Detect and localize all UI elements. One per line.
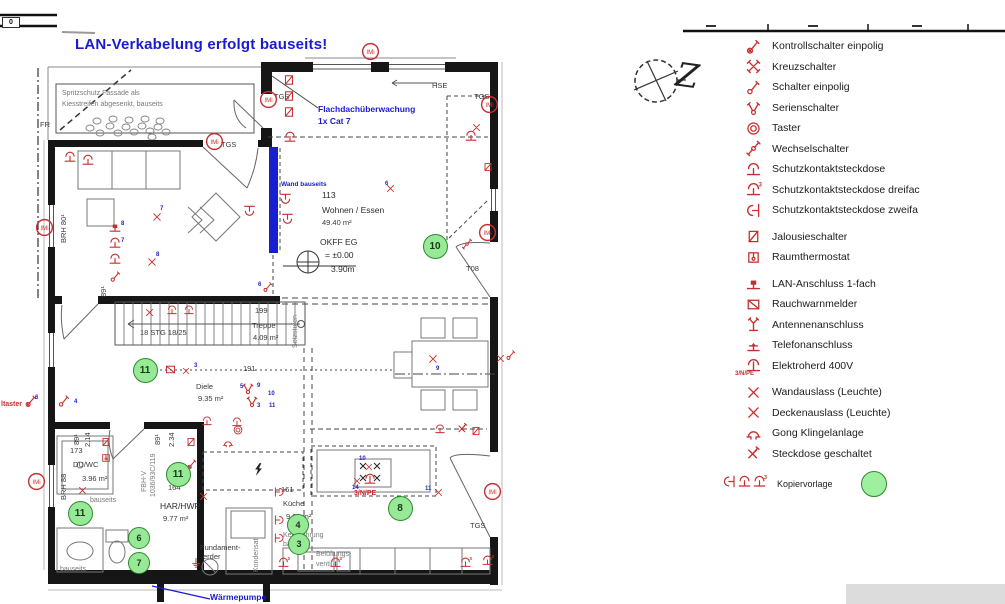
legend-item: Wandauslass (Leuchte) <box>740 382 1005 403</box>
lightning-icon <box>251 462 266 482</box>
plan-label: TGS <box>470 522 485 530</box>
socket-icon <box>737 474 752 494</box>
svg-text:IMi: IMi <box>488 488 496 495</box>
xmark-icon <box>144 305 155 323</box>
copy-marker: 11 <box>68 501 93 526</box>
legend-label: Schutzkontaktsteckdose dreifac <box>772 184 920 196</box>
plan-label: 18 STG 18/25 <box>140 329 187 337</box>
circuit-ref-number: 7 <box>121 238 124 244</box>
plan-label: FBH-V <box>141 471 149 492</box>
plan-label: 113 <box>322 191 336 200</box>
legend-label: Kreuzschalter <box>772 61 836 73</box>
legend-item: Elektroherd 400V3/N/PE <box>740 356 1005 377</box>
socket-icon <box>166 303 178 321</box>
legend-kopiervorlage-row: 3Kopiervorlage <box>740 471 1005 497</box>
legend-item: Gong Klingelanlage <box>740 423 1005 444</box>
symbol-legend: Kontrollschalter einpoligKreuzschalterSc… <box>740 36 1005 497</box>
legend-label: Wandauslass (Leuchte) <box>772 386 882 398</box>
telefon-icon <box>740 337 766 354</box>
box-icon <box>282 105 296 124</box>
legend-item: Antennenanschluss <box>740 315 1005 336</box>
socket-icon <box>283 130 297 149</box>
svg-text:3: 3 <box>764 475 767 481</box>
schalter-icon <box>505 348 517 366</box>
plan-label: BRH 88 <box>60 474 68 500</box>
imi-icon: IMi <box>35 218 54 242</box>
circuit-ref-number: 3 <box>257 403 260 409</box>
copy-marker: 11 <box>133 358 158 383</box>
legend-label: Schalter einpolig <box>772 81 850 93</box>
schalter-icon <box>740 79 766 96</box>
imi-icon: IMi <box>478 223 497 247</box>
copy-marker: 11 <box>166 462 191 487</box>
xmark-icon <box>77 483 88 501</box>
socket2-icon <box>243 204 262 218</box>
socket3-icon: 3 <box>277 556 290 574</box>
geschaltet-icon <box>456 422 469 440</box>
imi-icon: IMi <box>205 132 224 156</box>
plan-label: Kiesstreifen abgesenkt, bauseits <box>62 101 163 109</box>
plan-label: 49.40 m² <box>322 219 352 227</box>
imi-icon: IMi <box>480 95 499 119</box>
socket2-icon <box>722 474 737 494</box>
socket2-icon <box>279 192 298 206</box>
xmark-icon <box>151 210 163 228</box>
socket3-icon: 3 <box>752 474 767 494</box>
legend-label: Schutzkontaktsteckdose zweifa <box>772 204 918 216</box>
svg-text:IMi: IMi <box>366 48 374 55</box>
plan-label: FR <box>40 121 50 129</box>
svg-text:IMi: IMi <box>40 224 48 231</box>
legend-label: Telefonanschluss <box>772 339 853 351</box>
circuit-ref-number: 6 <box>385 181 388 187</box>
kreuz-icon <box>740 58 766 75</box>
plan-label: BRH 80¹ <box>60 214 68 243</box>
schalter-icon <box>109 270 122 288</box>
plan-label: erder <box>203 553 221 561</box>
legend-item: Kreuzschalter <box>740 57 1005 78</box>
schalter-icon <box>57 394 71 413</box>
legend-label: Serienschalter <box>772 102 839 114</box>
circuit-ref-number: 14 <box>352 485 359 491</box>
plan-label: T08 <box>466 265 479 273</box>
plan-label: 89¹ <box>73 434 81 445</box>
circuit-ref-number: 8 <box>121 221 124 227</box>
plan-label: 2.34 <box>168 432 176 447</box>
plan-label: 9.35 m² <box>198 395 223 403</box>
watermark-box <box>846 584 1005 604</box>
circuit-ref-number: 11 <box>269 403 275 409</box>
plan-label: Flachdachüberwachung <box>318 105 415 114</box>
svg-text:3: 3 <box>339 556 342 561</box>
legend-item: Jalousieschalter <box>740 227 1005 248</box>
serien-icon <box>740 99 766 116</box>
svg-text:IMi: IMi <box>210 138 218 145</box>
imi-icon: IMi <box>259 90 278 114</box>
erder-icon <box>190 556 202 574</box>
taster-icon <box>740 120 766 137</box>
circuit-ref-number: 6 <box>35 395 38 401</box>
plan-label: bauseits <box>60 566 86 574</box>
legend-item: Taster <box>740 118 1005 139</box>
socket3-icon: 3 <box>459 556 472 574</box>
legend-label: Steckdose geschaltet <box>772 448 872 460</box>
thermostat-icon <box>100 451 112 469</box>
thermostat-icon <box>740 249 766 266</box>
copy-marker: 10 <box>423 234 448 259</box>
circuit-ref-number: 8 <box>156 252 159 258</box>
plan-label: Küche <box>283 500 304 508</box>
floor-plan-page: 0 LAN-Verkabelung erfolgt bauseits! <box>0 0 1005 604</box>
legend-item: Wechselschalter <box>740 139 1005 160</box>
socket3-icon: 3 <box>329 556 342 574</box>
legend-label: Gong Klingelanlage <box>772 427 864 439</box>
plan-label: 3/N/PE <box>354 490 376 498</box>
legend-label: Schutzkontaktsteckdose <box>772 163 885 175</box>
rwm-icon <box>740 296 766 313</box>
svg-text:IMi: IMi <box>483 229 491 236</box>
socket-icon <box>63 150 77 169</box>
svg-text:3: 3 <box>758 183 761 189</box>
circuit-ref-number: 4 <box>74 399 77 405</box>
copy-marker: 3 <box>288 533 310 555</box>
plan-label: OKFF EG <box>320 238 357 247</box>
plan-label: HSE <box>432 82 447 90</box>
gong-icon <box>740 425 766 442</box>
circuit-ref-number: 9 <box>257 383 260 389</box>
legend-label: Kontrollschalter einpolig <box>772 40 883 52</box>
legend-label: Taster <box>772 122 801 134</box>
plan-label: 2.14 <box>84 432 92 447</box>
socket3-icon: 3 <box>740 181 766 198</box>
plan-label: Wohnen / Essen <box>322 206 384 215</box>
legend-item: Rauchwarnmelder <box>740 294 1005 315</box>
xmark-icon <box>495 351 506 369</box>
plan-label: Wärmepumpe <box>210 593 266 602</box>
socket-icon <box>268 514 286 526</box>
box-icon <box>482 160 494 178</box>
plan-label: 173 <box>70 447 83 455</box>
plan-label: Kondensat <box>253 539 261 572</box>
circuit-ref-number: 3 <box>194 363 197 369</box>
antenna-icon <box>740 316 766 333</box>
legend-item: 3Schutzkontaktsteckdose dreifac <box>740 180 1005 201</box>
circuit-ref-number: 6 <box>258 282 261 288</box>
box-icon <box>740 228 766 245</box>
plan-label: 89¹ <box>100 286 108 297</box>
svg-text:IMi: IMi <box>32 478 40 485</box>
ruler-line <box>680 18 1005 38</box>
gong-icon <box>222 436 234 454</box>
xmark-icon <box>471 120 482 138</box>
circuit-ref-number: 10 <box>268 391 275 397</box>
socket-icon <box>108 252 122 271</box>
kontroll-icon <box>740 38 766 55</box>
circuit-ref-number: 9 <box>436 366 439 372</box>
box-icon <box>470 424 482 442</box>
svg-text:IMi: IMi <box>264 96 272 103</box>
svg-text:3: 3 <box>491 554 494 559</box>
legend-sub-label: 3/N/PE <box>735 371 754 377</box>
wechsel-icon <box>461 237 473 255</box>
legend-item: Schalter einpolig <box>740 77 1005 98</box>
circuit-ref-number: 7 <box>160 206 163 212</box>
legend-label: Wechselschalter <box>772 143 849 155</box>
socket-icon <box>268 486 286 498</box>
svg-text:3: 3 <box>469 556 472 561</box>
xmark-icon <box>198 489 209 507</box>
legend-item: Kontrollschalter einpolig <box>740 36 1005 57</box>
plan-label: 3.90m <box>331 265 355 274</box>
legend-label: Antennenanschluss <box>772 319 864 331</box>
socket-icon <box>434 422 446 440</box>
legend-item: Schutzkontaktsteckdose <box>740 159 1005 180</box>
plan-label: Diele <box>196 383 213 391</box>
legend-label: Rauchwarnmelder <box>772 298 857 310</box>
legend-item: LAN-Anschluss 1-fach <box>740 274 1005 295</box>
plan-label: 199 <box>255 307 268 315</box>
socket-icon <box>740 161 766 178</box>
plan-label: 191 <box>243 365 256 373</box>
box-icon <box>185 435 197 453</box>
circuit-ref-number: 5 <box>240 384 243 390</box>
socket2-icon <box>281 212 300 226</box>
wechsel-icon <box>740 140 766 157</box>
plan-label: Setzstufen <box>292 315 300 348</box>
kopiervorlage-label: Kopiervorlage <box>777 479 833 489</box>
imi-icon: IMi <box>361 42 380 66</box>
legend-item: Serienschalter <box>740 98 1005 119</box>
plan-label: = ±0.00 <box>325 251 354 260</box>
circuit-ref-number: 11 <box>425 486 431 492</box>
legend-item: Telefonanschluss <box>740 335 1005 356</box>
plan-label: Wand bauseits <box>281 181 327 188</box>
legend-label: Raumthermostat <box>772 251 850 263</box>
imi-icon: IMi <box>483 482 502 506</box>
plan-label: Spritzschutz Fassade als <box>62 90 140 98</box>
plan-label: 9.77 m² <box>163 515 188 523</box>
xmark-icon <box>433 485 444 503</box>
schalter-icon <box>262 280 274 298</box>
xmark-icon <box>181 363 191 381</box>
imi-icon: IMi <box>27 472 46 496</box>
legend-item: Raumthermostat <box>740 247 1005 268</box>
xmark-icon <box>740 384 766 401</box>
copy-marker: 6 <box>128 527 150 549</box>
plan-label: DU/WC <box>73 461 98 469</box>
socket-icon <box>81 153 95 172</box>
socket-icon <box>201 414 213 432</box>
socket2-icon <box>740 202 766 219</box>
socket-icon <box>268 532 286 544</box>
plan-label: 89¹ <box>154 434 162 445</box>
socket-icon <box>183 303 195 321</box>
plan-label: HAR/HWR <box>160 502 201 511</box>
copy-marker: 8 <box>388 496 413 521</box>
geschaltet-icon <box>740 445 766 462</box>
plan-label: 4.09 m² <box>253 334 278 342</box>
plan-label: bauseits <box>90 497 116 505</box>
socket3-icon: 3 <box>481 554 494 572</box>
plan-label: 1x Cat 7 <box>318 117 351 126</box>
lan-icon <box>740 275 766 292</box>
legend-item: Steckdose geschaltet <box>740 444 1005 465</box>
legend-label: LAN-Anschluss 1-fach <box>772 278 876 290</box>
legend-label: Deckenauslass (Leuchte) <box>772 407 890 419</box>
wand-bauseits-bar <box>269 147 278 253</box>
kopiervorlage-circle <box>861 471 887 497</box>
plan-label: Treppe <box>252 322 276 330</box>
rwm-icon <box>164 363 177 381</box>
svg-text:3: 3 <box>287 556 290 561</box>
legend-item: Schutzkontaktsteckdose zweifa <box>740 200 1005 221</box>
svg-text:IMi: IMi <box>485 101 493 108</box>
circuit-ref-number: 10 <box>359 456 366 462</box>
plan-label: Fundament- <box>200 544 240 552</box>
legend-label: Elektroherd 400V <box>772 360 853 372</box>
legend-label: Jalousieschalter <box>772 231 847 243</box>
legend-item: Deckenauslass (Leuchte) <box>740 403 1005 424</box>
copy-marker: 7 <box>128 552 150 574</box>
xmark-icon <box>740 404 766 421</box>
plan-label: ltaster <box>1 401 22 409</box>
plan-label: 1036/93C/119 <box>150 454 158 497</box>
